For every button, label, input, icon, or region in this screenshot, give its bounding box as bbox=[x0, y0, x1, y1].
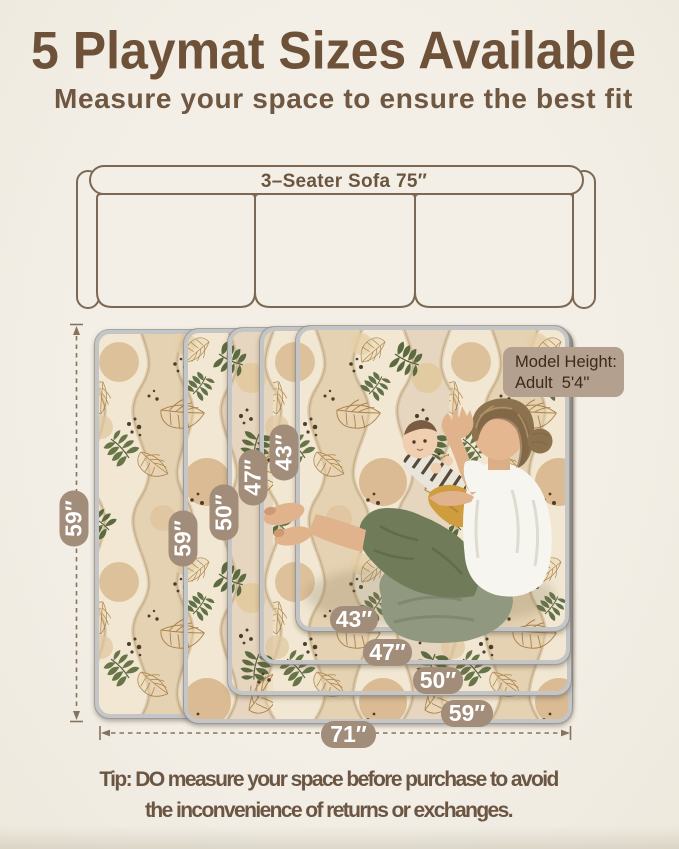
svg-text:3–Seater Sofa 75″: 3–Seater Sofa 75″ bbox=[261, 171, 427, 192]
